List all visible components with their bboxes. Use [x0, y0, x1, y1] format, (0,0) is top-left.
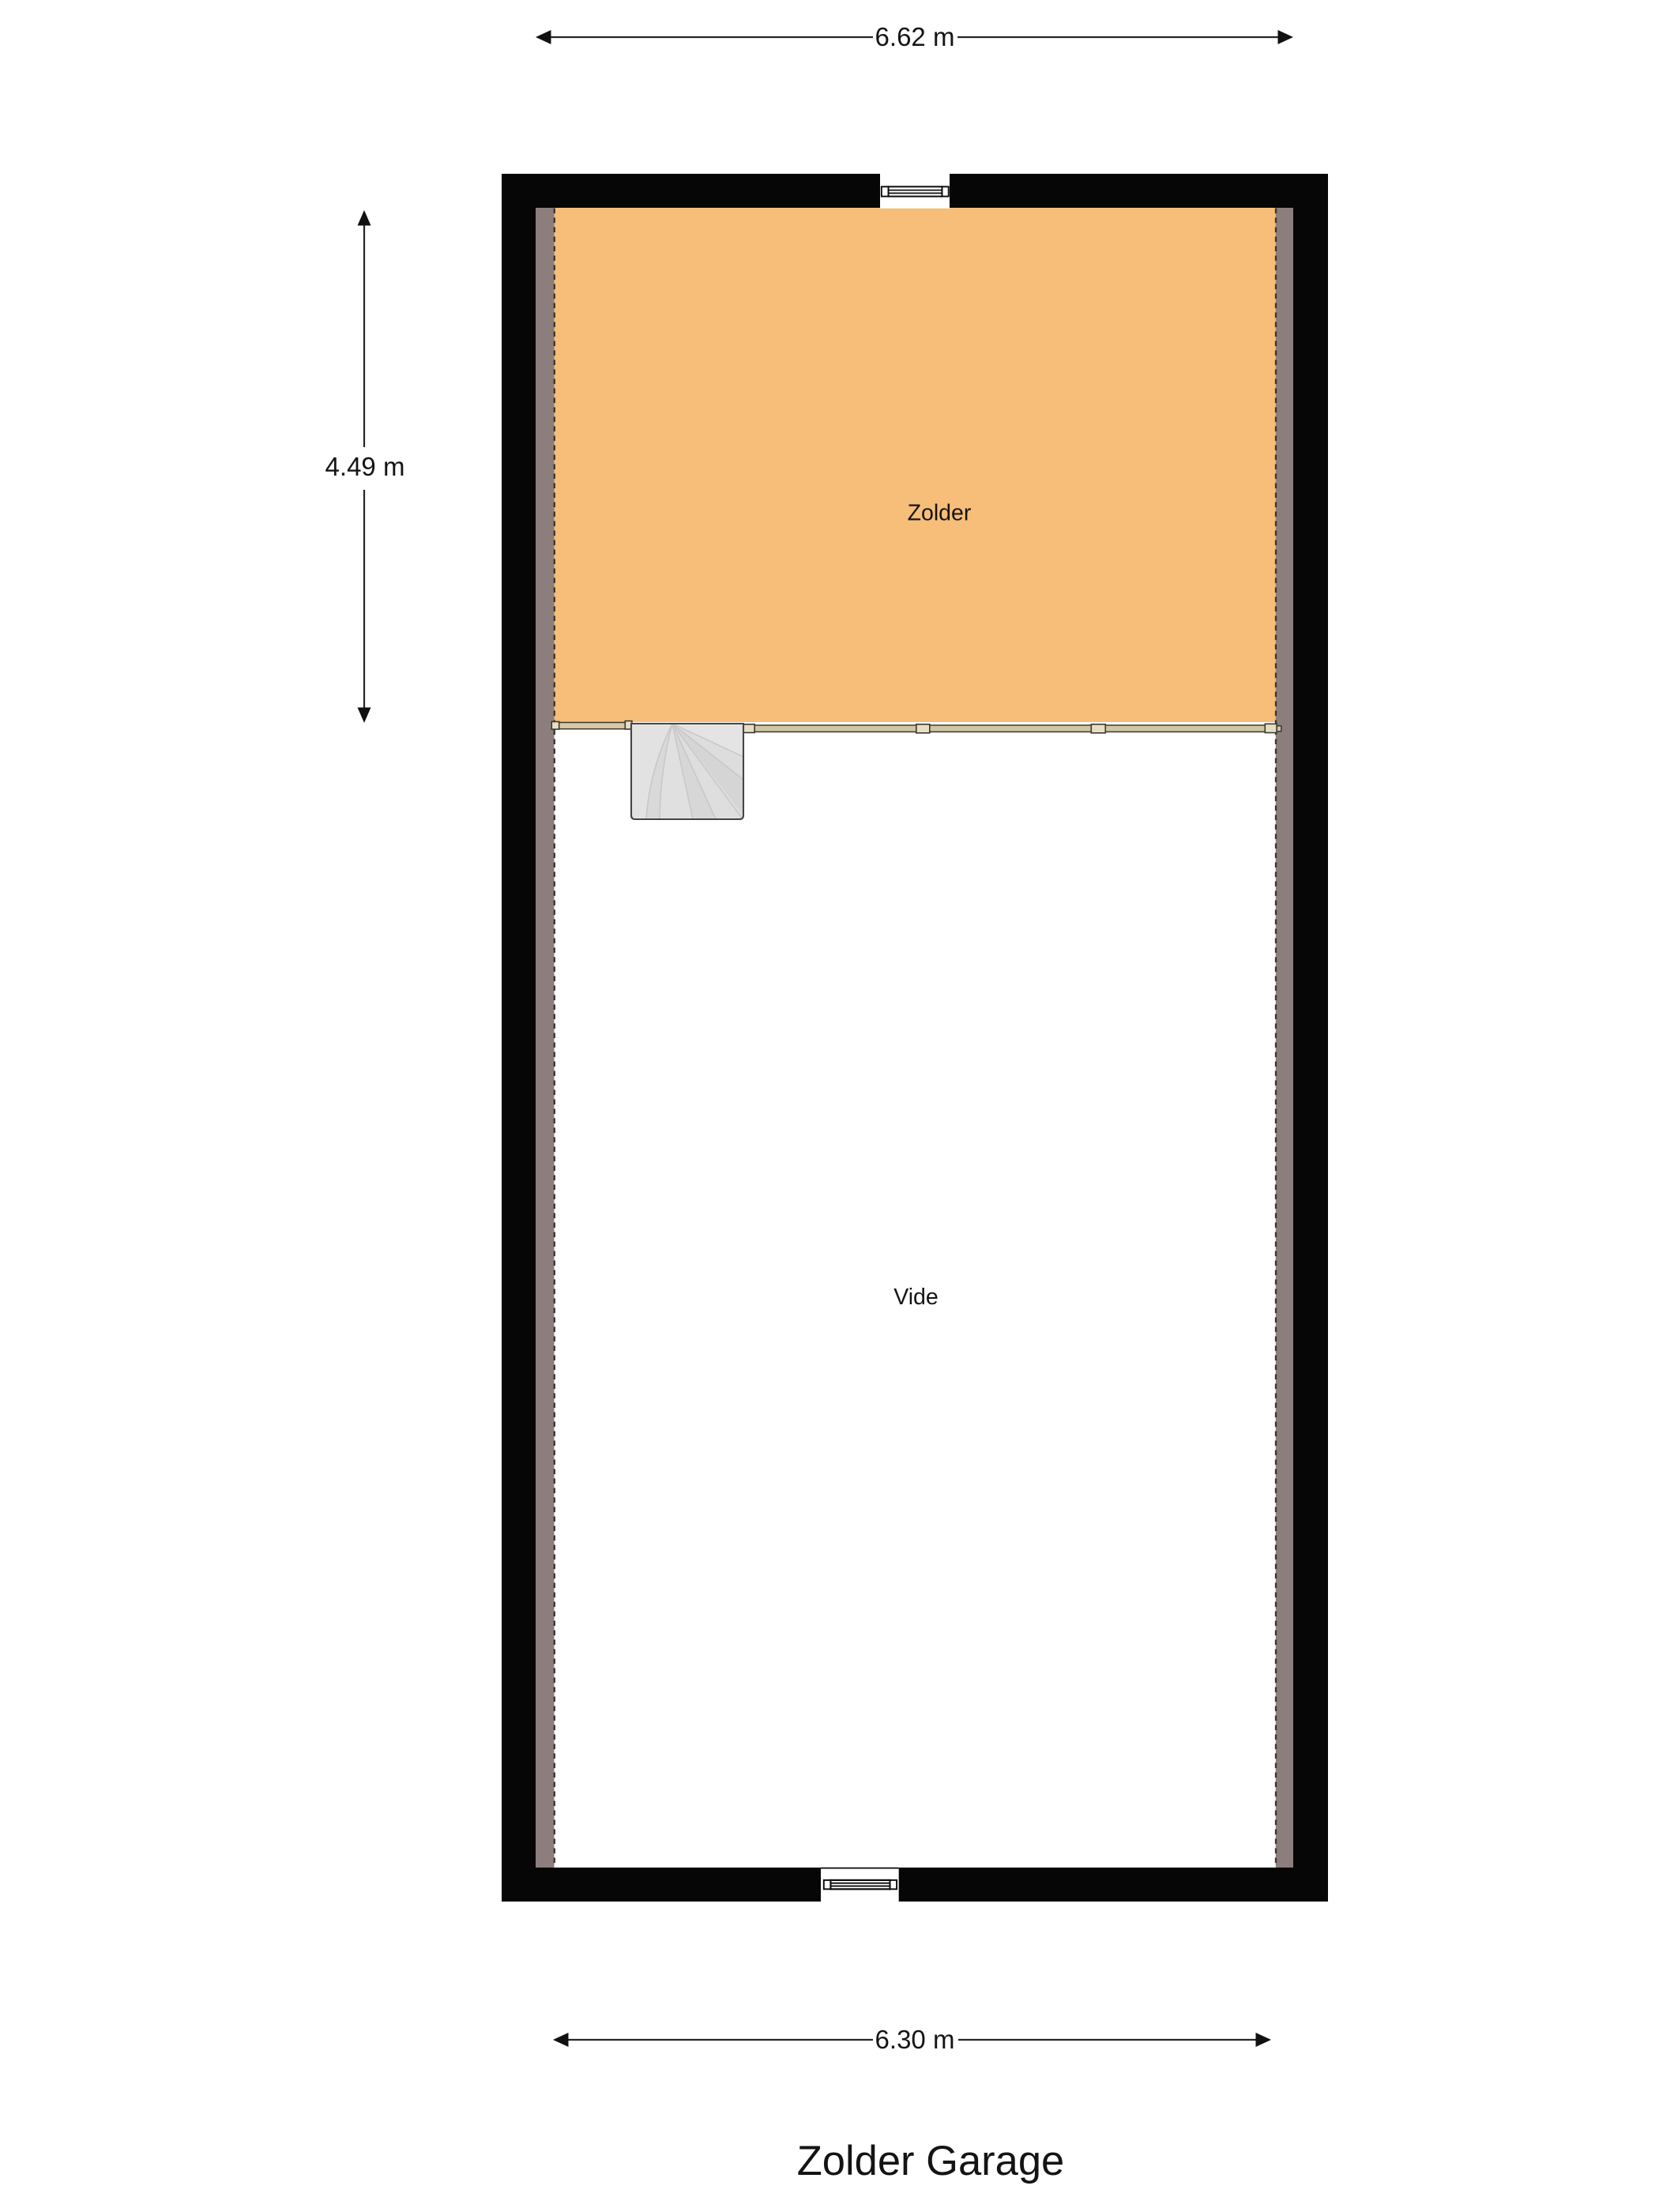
svg-text:Zolder Garage: Zolder Garage — [797, 2138, 1065, 2184]
svg-text:6.30 m: 6.30 m — [875, 2025, 955, 2054]
svg-text:Zolder: Zolder — [908, 501, 972, 526]
svg-text:4.49 m: 4.49 m — [325, 452, 405, 481]
svg-text:6.62 m: 6.62 m — [875, 22, 955, 51]
svg-text:Vide: Vide — [893, 1285, 939, 1310]
